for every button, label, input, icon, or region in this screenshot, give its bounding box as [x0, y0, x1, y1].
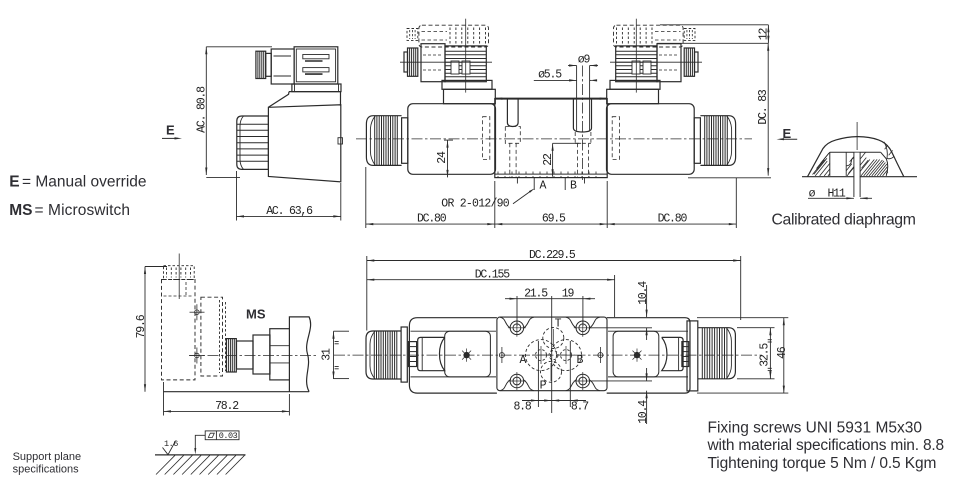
- svg-text:1.6: 1.6: [164, 439, 178, 449]
- svg-text:21.5: 21.5: [524, 287, 548, 300]
- svg-text:DC.80: DC.80: [417, 213, 447, 226]
- svg-text:MS: MS: [246, 307, 266, 322]
- svg-text:DC.80: DC.80: [658, 213, 688, 226]
- svg-text:12: 12: [758, 28, 771, 41]
- svg-text:31: 31: [320, 348, 333, 361]
- svg-text:with material specifications m: with material specifications min. 8.8: [707, 437, 944, 454]
- svg-text:ø9: ø9: [578, 54, 591, 67]
- svg-text:A: A: [540, 180, 547, 193]
- svg-text:= Manual override: = Manual override: [22, 174, 147, 191]
- svg-text:69.5: 69.5: [542, 213, 566, 226]
- svg-text:Support plane: Support plane: [13, 451, 82, 463]
- svg-text:10.4: 10.4: [637, 400, 650, 424]
- svg-text:Tightening torque 5 Nm / 0.5 K: Tightening torque 5 Nm / 0.5 Kgm: [708, 455, 937, 472]
- svg-text:B: B: [570, 180, 577, 193]
- svg-text:Calibrated diaphragm: Calibrated diaphragm: [772, 212, 916, 229]
- svg-text:B: B: [577, 354, 584, 367]
- svg-text:24: 24: [436, 151, 449, 164]
- svg-text:E: E: [9, 174, 19, 191]
- svg-text:specifications: specifications: [13, 463, 80, 475]
- svg-text:Fixing screws UNI 5931 M5x30: Fixing screws UNI 5931 M5x30: [708, 420, 923, 437]
- svg-text:0.03: 0.03: [219, 431, 238, 441]
- svg-text:= Microswitch: = Microswitch: [35, 202, 131, 219]
- svg-text:DC.155: DC.155: [475, 268, 511, 281]
- svg-text:78.2: 78.2: [215, 400, 239, 413]
- svg-text:10.4: 10.4: [637, 281, 650, 305]
- svg-text:AC. 63,6: AC. 63,6: [266, 205, 313, 218]
- svg-text:8.8: 8.8: [513, 400, 531, 413]
- svg-text:32.5: 32.5: [758, 343, 771, 367]
- svg-text:DC.229.5: DC.229.5: [529, 249, 576, 262]
- svg-text:ø5.5: ø5.5: [538, 69, 562, 82]
- svg-text:DC. 83: DC. 83: [757, 89, 770, 125]
- svg-text:T: T: [555, 318, 562, 331]
- svg-text:H11: H11: [827, 188, 845, 201]
- svg-text:AC. 80.8: AC. 80.8: [196, 86, 209, 133]
- svg-text:8.7: 8.7: [571, 400, 588, 413]
- svg-text:19: 19: [562, 287, 575, 300]
- svg-text:46: 46: [776, 346, 789, 359]
- svg-text:OR 2-012/90: OR 2-012/90: [441, 197, 510, 210]
- svg-text:E: E: [166, 123, 175, 138]
- svg-text:22: 22: [542, 153, 555, 166]
- svg-text:79.6: 79.6: [135, 314, 148, 338]
- svg-text:MS: MS: [9, 202, 32, 219]
